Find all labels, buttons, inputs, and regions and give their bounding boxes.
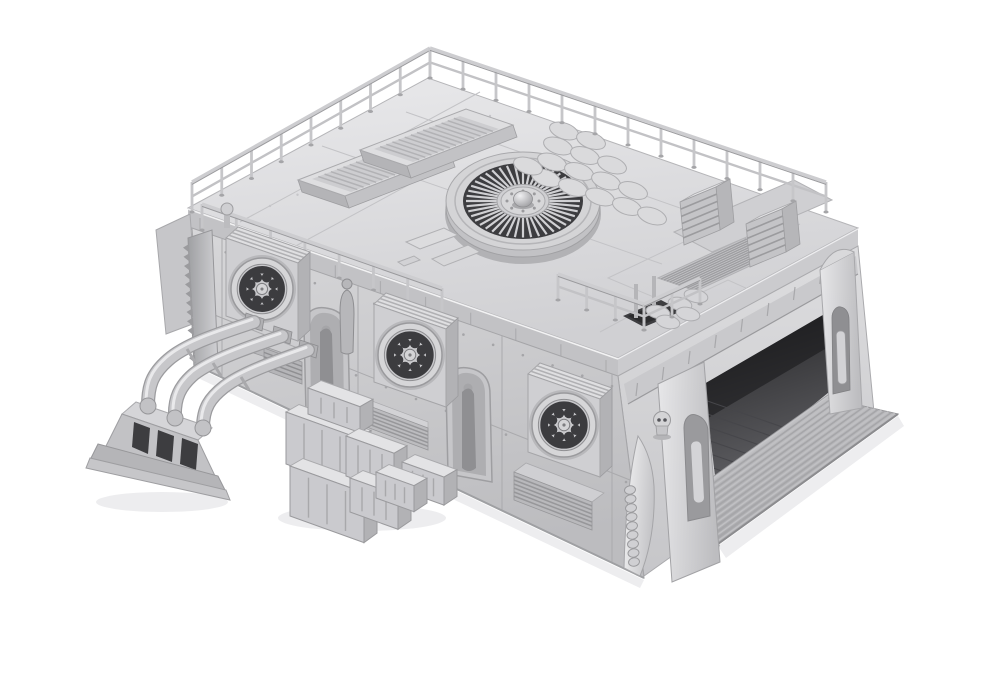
corner-finial: [221, 203, 233, 215]
fan-hub-dome: [514, 191, 533, 207]
render-canvas: [40, 16, 1000, 666]
fan-grille: [529, 390, 599, 460]
niche-statue: [462, 388, 476, 471]
skull-ornament: [653, 412, 671, 441]
fan-grille: [375, 320, 445, 390]
fan-grille: [228, 255, 296, 323]
